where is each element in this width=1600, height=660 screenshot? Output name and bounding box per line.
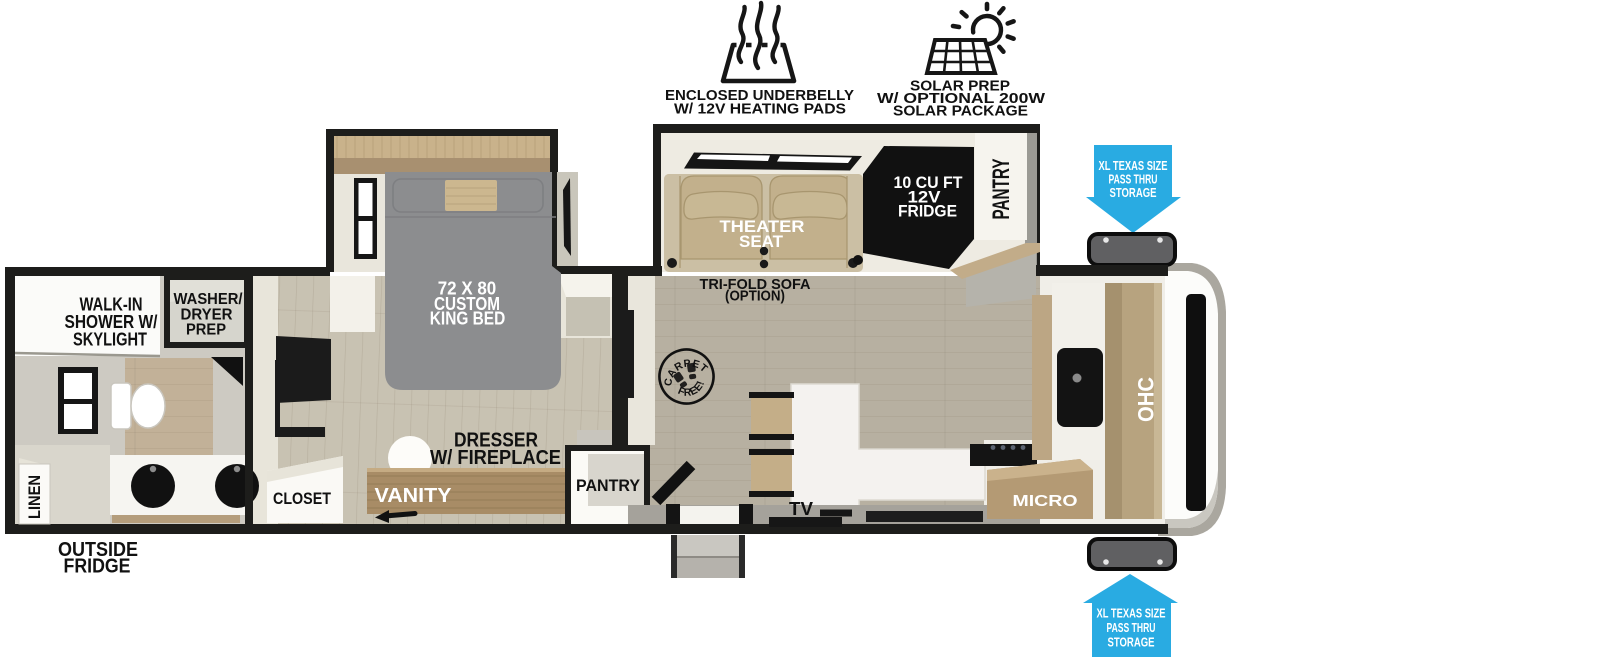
svg-text:PREP: PREP: [186, 322, 226, 339]
svg-text:OHC: OHC: [1134, 377, 1159, 422]
svg-text:PANTRY: PANTRY: [576, 476, 641, 495]
svg-text:PASS THRU: PASS THRU: [1107, 620, 1156, 635]
svg-text:WASHER/: WASHER/: [174, 291, 244, 308]
svg-text:W/ FIREPLACE: W/ FIREPLACE: [430, 447, 561, 469]
svg-text:TV: TV: [789, 499, 813, 519]
svg-text:(OPTION): (OPTION): [725, 288, 785, 305]
svg-text:MICRO: MICRO: [1013, 493, 1078, 510]
svg-text:SKYLIGHT: SKYLIGHT: [73, 330, 147, 350]
svg-text:KING BED: KING BED: [430, 309, 506, 329]
svg-text:SOLAR PACKAGE: SOLAR PACKAGE: [893, 104, 1028, 120]
svg-text:STORAGE: STORAGE: [1108, 635, 1155, 650]
svg-text:SEAT: SEAT: [739, 232, 784, 251]
svg-text:CLOSET: CLOSET: [273, 489, 332, 508]
svg-text:XL TEXAS SIZE: XL TEXAS SIZE: [1097, 606, 1166, 621]
svg-text:FRIDGE: FRIDGE: [64, 556, 131, 578]
svg-text:LINEN: LINEN: [26, 475, 44, 519]
svg-text:FRIDGE: FRIDGE: [898, 203, 957, 221]
svg-text:VANITY: VANITY: [375, 485, 453, 507]
svg-text:W/ 12V HEATING PADS: W/ 12V HEATING PADS: [674, 102, 846, 118]
svg-text:STORAGE: STORAGE: [1110, 185, 1157, 200]
svg-text:PANTRY: PANTRY: [988, 159, 1015, 220]
